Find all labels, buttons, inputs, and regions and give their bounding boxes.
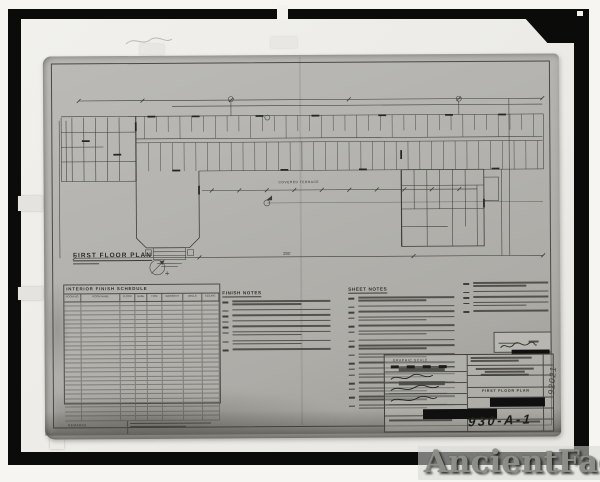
frame-right (574, 9, 589, 465)
scanned-blueprint-page: COVERED TERRACE 255' FIRST FLOOR PLAN IN… (0, 0, 600, 482)
note-item (463, 310, 551, 314)
schedule-column-header: FLOOR (121, 294, 135, 301)
redaction-bar-a (490, 398, 545, 407)
tape-left-upper (18, 196, 43, 211)
schedule-column-header: ROOM NO. (64, 294, 81, 301)
note-item (349, 330, 459, 337)
schedule-column-header: TRIM (148, 294, 162, 301)
pencil-mark (124, 34, 174, 50)
note-item (349, 344, 459, 351)
note-item (463, 301, 551, 308)
margin-code: 92021 (547, 366, 560, 416)
note-item (348, 316, 458, 323)
note-item (463, 296, 551, 300)
note-item (348, 324, 458, 328)
drawing-sheet: COVERED TERRACE 255' FIRST FLOOR PLAN IN… (43, 53, 561, 439)
frame-top (8, 9, 578, 19)
titleblock-firm-lines (471, 357, 539, 363)
titleblock-contract-line (389, 419, 463, 422)
tape-left-lower (18, 287, 43, 300)
schedule-column-header: ROOM NAME (81, 294, 120, 301)
approval-signatures (387, 372, 465, 412)
schedule-footer: REMARKS (65, 420, 220, 434)
sheet-notes-continued-list (463, 281, 551, 313)
finish-notes-heading: FINISH NOTES (222, 290, 261, 297)
note-item (222, 314, 334, 318)
note-item (348, 305, 458, 309)
sheet-notes-continued (463, 281, 551, 316)
graphic-scale-bar (391, 364, 461, 370)
finish-notes-section: FINISH NOTES (222, 281, 334, 354)
finish-notes-list (222, 300, 334, 352)
schedule-column-header: CEILING (202, 294, 219, 301)
note-item (348, 296, 458, 303)
schedule-footer-notes (128, 420, 220, 434)
note-item (463, 281, 551, 288)
note-item (463, 290, 551, 294)
tape-top-2 (271, 37, 297, 48)
corner-speck (577, 11, 583, 16)
note-item (348, 310, 458, 314)
note-item (349, 339, 459, 343)
note-item (222, 325, 334, 329)
plan-title: FIRST FLOOR PLAN (73, 252, 152, 261)
note-item (222, 320, 334, 324)
schedule-body (64, 302, 220, 421)
plan-scale-note (73, 263, 99, 264)
graphic-scale-label: GRAPHIC SCALE (393, 358, 428, 362)
note-item (222, 308, 334, 312)
frame-left (8, 9, 21, 465)
schedule-column-header: WALLS (183, 294, 202, 301)
schedule-column-header: BASE (135, 294, 148, 301)
drawing-title: FIRST FLOOR PLAN (469, 389, 543, 393)
note-item (223, 339, 335, 346)
terrace-label: COVERED TERRACE (279, 180, 320, 184)
titleblock-project-lines (471, 368, 539, 376)
schedule-column-header: WAINSCOT (162, 294, 184, 301)
note-item (223, 348, 335, 352)
watermark-text: AncientFaces (424, 444, 600, 480)
schedule-footer-label: REMARKS (65, 421, 128, 434)
note-item (222, 300, 334, 307)
total-dimension: 255' (283, 251, 291, 256)
finish-schedule-table: INTERIOR FINISH SCHEDULE ROOM NO.ROOM NA… (63, 284, 221, 405)
paper-top-tab (277, 5, 288, 20)
sheet-notes-heading: SHEET NOTES (348, 286, 387, 293)
note-item (223, 331, 335, 338)
